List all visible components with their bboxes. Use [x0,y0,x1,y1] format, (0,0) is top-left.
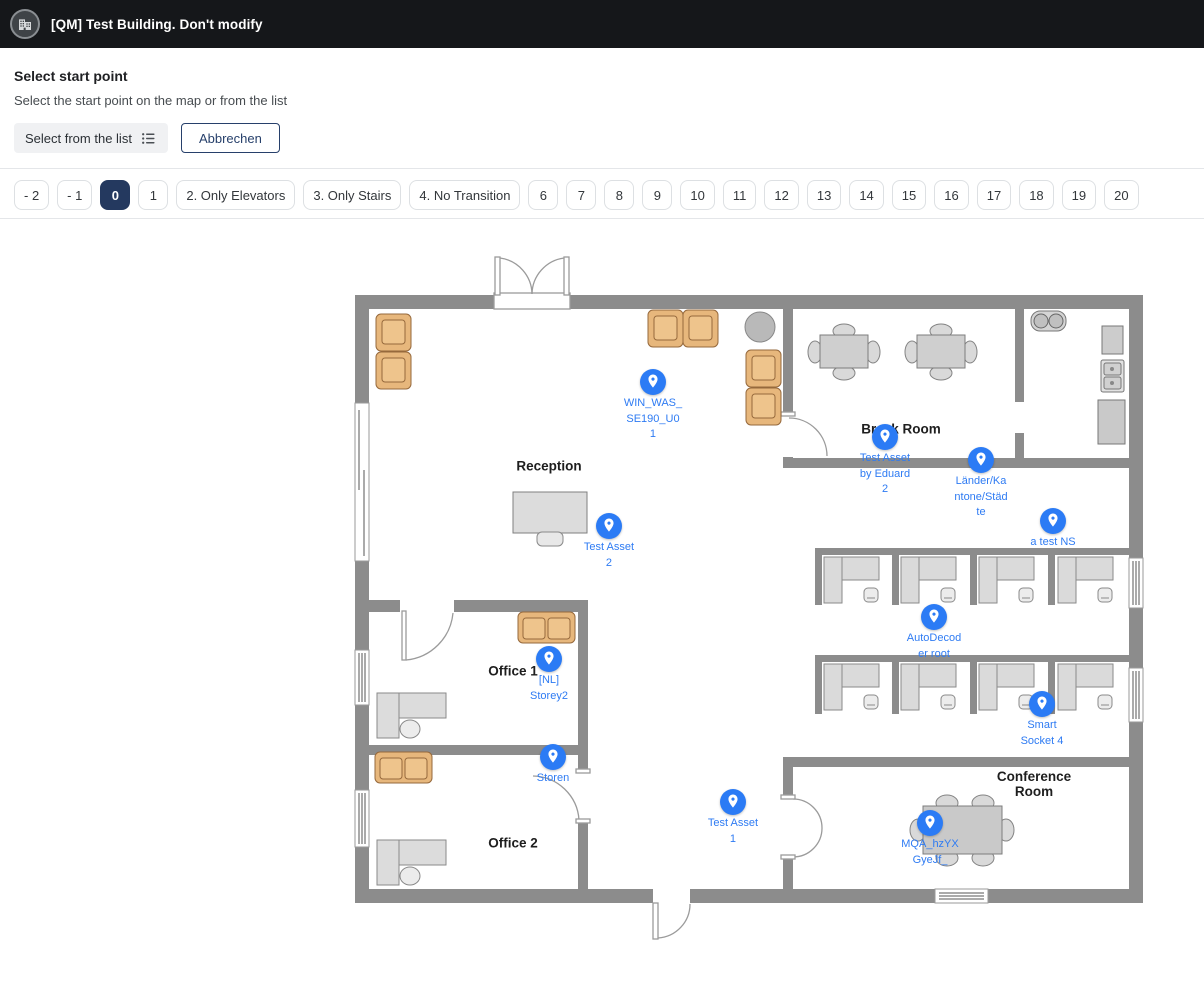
map-pin-icon [536,646,562,672]
map-pin-icon [640,369,666,395]
floor-chip-14[interactable]: 14 [849,180,883,210]
floor-chip-18[interactable]: 18 [1019,180,1053,210]
divider-bottom [0,218,1204,219]
floor-chip-19[interactable]: 19 [1062,180,1096,210]
floor-chip-6[interactable]: 6 [528,180,558,210]
map-marker[interactable]: Länder/Ka ntone/Städ te [945,447,1017,521]
marker-label: Test Asset 2 [584,540,634,571]
marker-label: MQA_hzYX GyeJf_ [901,837,958,868]
marker-label: Test Asset 1 [708,816,758,847]
action-bar: Select from the list Abbrechen [14,123,1190,153]
marker-label: a test NS [1030,535,1075,551]
marker-label: Test Asset by Eduard 2 [860,451,910,498]
map-marker[interactable]: Test Asset 1 [697,789,769,847]
marker-label: Storen [537,771,569,787]
floor-chip-0[interactable]: 0 [100,180,130,210]
floor-chip-2.OnlyElevators[interactable]: 2. Only Elevators [176,180,295,210]
floor-chip-16[interactable]: 16 [934,180,968,210]
marker-label: Smart Socket 4 [1021,718,1064,749]
floor-chip-1[interactable]: 1 [138,180,168,210]
map-marker[interactable]: Storen [517,744,589,787]
map-marker[interactable]: WIN_WAS_ SE190_U0 1 [617,369,689,443]
map-marker[interactable]: AutoDecod er root [898,604,970,662]
floor-chip-4.NoTransition[interactable]: 4. No Transition [409,180,520,210]
divider-top [0,168,1204,169]
map-pin-icon [596,513,622,539]
cancel-button[interactable]: Abbrechen [181,123,280,153]
floor-chip--1[interactable]: - 1 [57,180,92,210]
map-marker[interactable]: Test Asset 2 [573,513,645,571]
map-pin-icon [921,604,947,630]
floor-chip-12[interactable]: 12 [764,180,798,210]
map-pin-icon [968,447,994,473]
list-icon [140,130,157,147]
page-subtitle: Select the start point on the map or fro… [14,93,1190,108]
floor-chip-17[interactable]: 17 [977,180,1011,210]
marker-label: [NL] Storey2 [530,673,568,704]
floor-chip-20[interactable]: 20 [1104,180,1138,210]
floor-chip-7[interactable]: 7 [566,180,596,210]
map-marker[interactable]: a test NS [1017,508,1089,551]
marker-label: AutoDecod er root [907,631,961,662]
floor-chip-11[interactable]: 11 [723,180,757,210]
floor-chip-3.OnlyStairs[interactable]: 3. Only Stairs [303,180,401,210]
map-pin-icon [1029,691,1055,717]
floor-chip-10[interactable]: 10 [680,180,714,210]
floor-chip-8[interactable]: 8 [604,180,634,210]
header: Select start point Select the start poin… [0,48,1204,153]
building-icon [10,9,40,39]
map-pin-icon [917,810,943,836]
map-pin-icon [1040,508,1066,534]
topbar: [QM] Test Building. Don't modify [0,0,1204,48]
round-table [745,312,775,342]
marker-label: Länder/Ka ntone/Städ te [954,474,1007,521]
map-pin-icon [872,424,898,450]
select-from-list-label: Select from the list [25,131,132,146]
map-marker[interactable]: MQA_hzYX GyeJf_ [894,810,966,868]
floor-selector: - 2- 1012. Only Elevators3. Only Stairs4… [14,180,1139,210]
map-marker[interactable]: [NL] Storey2 [513,646,585,704]
map-pin-icon [540,744,566,770]
map-marker[interactable]: Test Asset by Eduard 2 [849,424,921,498]
page-title: Select start point [14,68,1190,84]
select-from-list-button[interactable]: Select from the list [14,123,168,153]
map-marker[interactable]: Smart Socket 4 [1006,691,1078,749]
floor-chip-15[interactable]: 15 [892,180,926,210]
floor-chip-9[interactable]: 9 [642,180,672,210]
marker-label: WIN_WAS_ SE190_U0 1 [624,396,682,443]
map-pin-icon [720,789,746,815]
floor-plan-map[interactable] [0,225,1204,1002]
floor-chip--2[interactable]: - 2 [14,180,49,210]
app-title: [QM] Test Building. Don't modify [51,17,263,32]
floor-chip-13[interactable]: 13 [807,180,841,210]
